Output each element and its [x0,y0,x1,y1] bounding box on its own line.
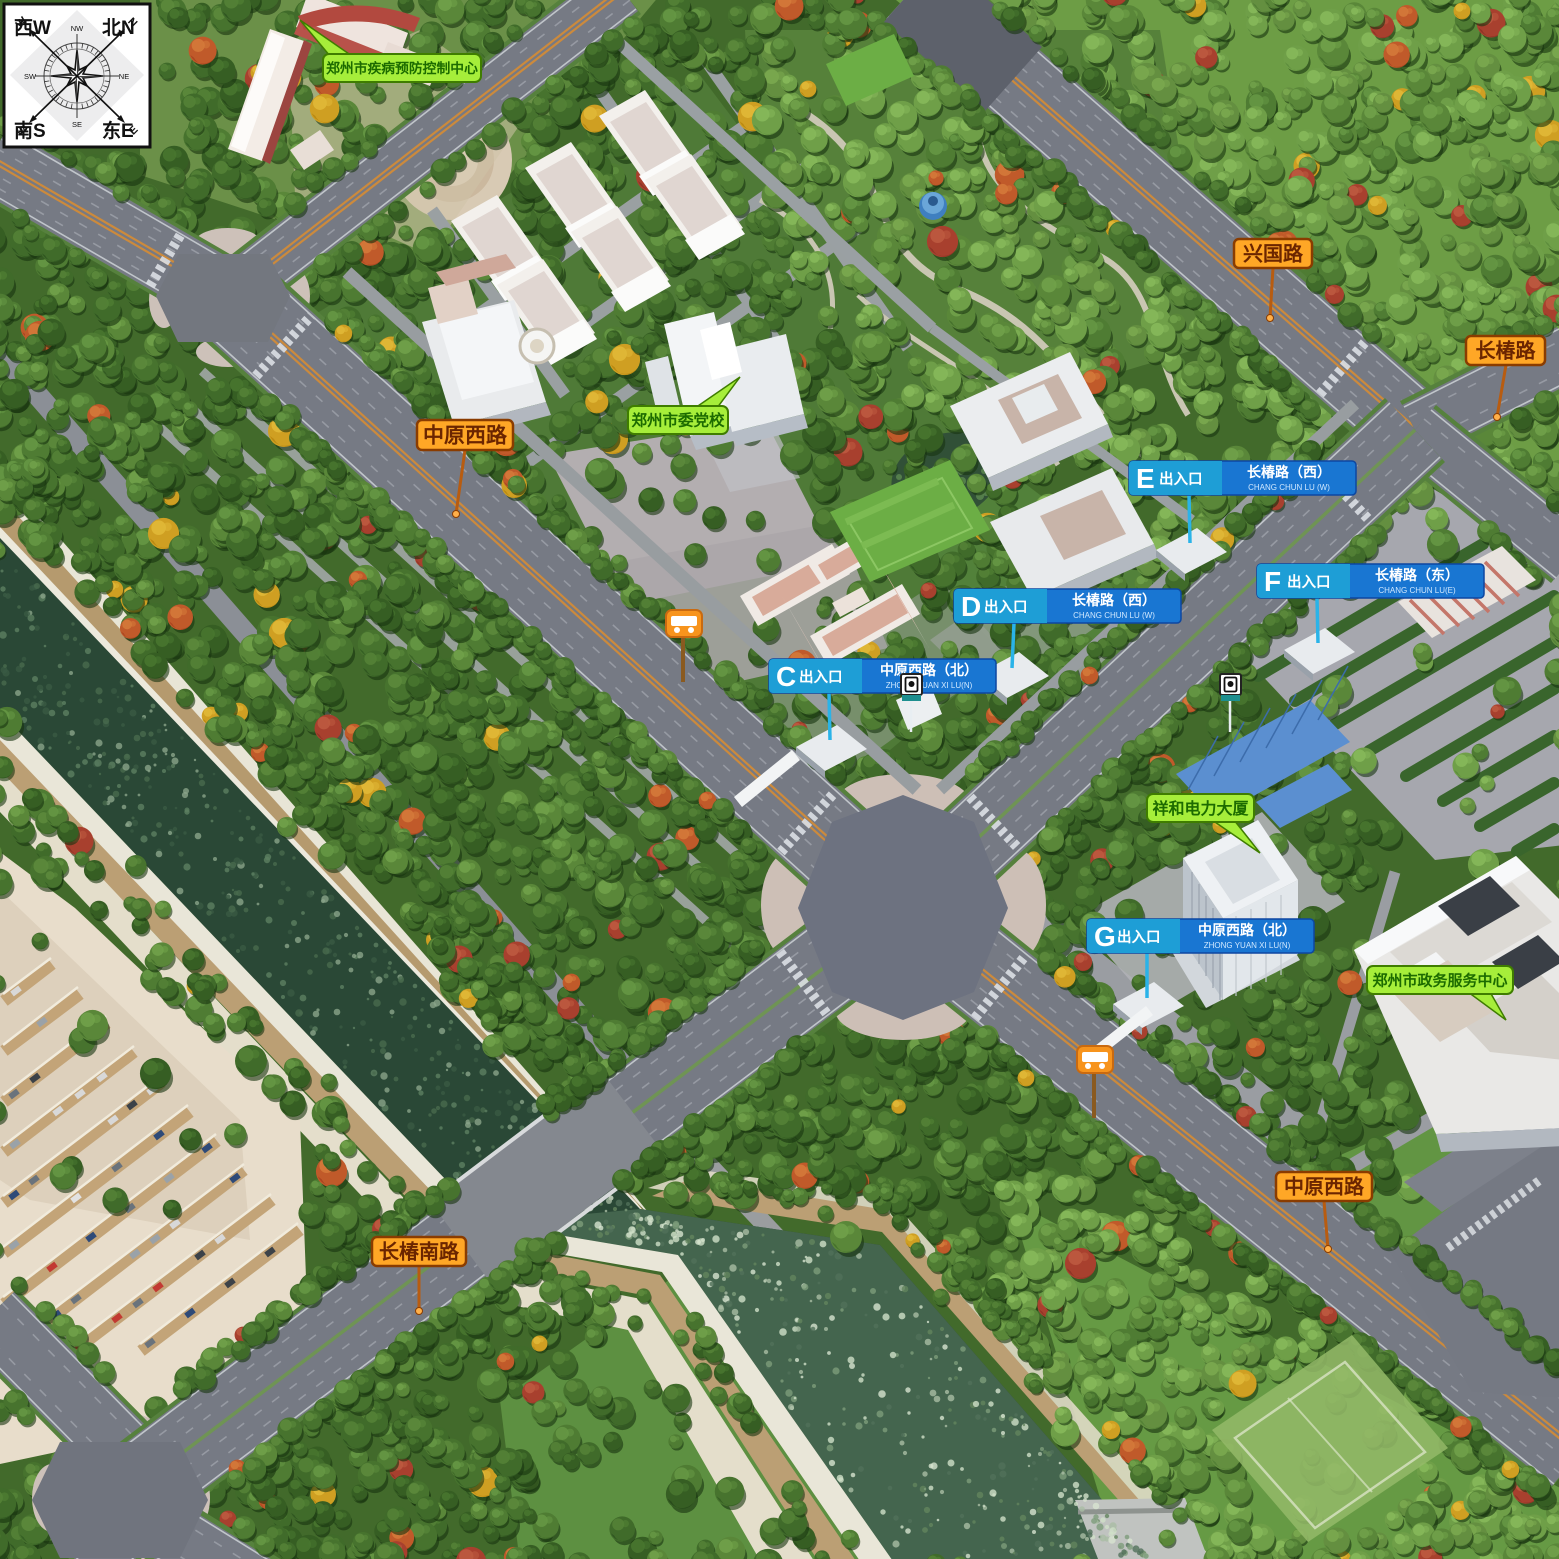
svg-text:郑州市委党校: 郑州市委党校 [631,411,725,430]
svg-text:F: F [1264,566,1281,597]
svg-text:长椿路（西）: 长椿路（西） [1247,464,1331,480]
svg-text:ZHONG YUAN XI LU(N): ZHONG YUAN XI LU(N) [1204,941,1291,950]
svg-text:南S: 南S [14,120,46,142]
svg-text:长椿路: 长椿路 [1476,339,1537,363]
svg-text:NW: NW [71,24,84,33]
svg-text:中原西路: 中原西路 [423,424,508,448]
svg-text:出入口: 出入口 [984,598,1028,616]
svg-text:出入口: 出入口 [799,668,843,686]
svg-text:NE: NE [119,72,129,81]
svg-text:长椿路（东）: 长椿路（东） [1375,567,1459,583]
svg-text:G: G [1094,921,1116,952]
svg-text:CHANG CHUN LU (W): CHANG CHUN LU (W) [1248,483,1330,492]
svg-text:祥和电力大厦: 祥和电力大厦 [1152,799,1249,818]
svg-text:兴国路: 兴国路 [1243,242,1304,266]
svg-text:郑州市疾病预防控制中心: 郑州市疾病预防控制中心 [326,60,478,76]
svg-text:出入口: 出入口 [1117,928,1161,946]
svg-text:北N: 北N [102,17,135,39]
svg-text:ZHONG YUAN XI LU(N): ZHONG YUAN XI LU(N) [886,681,973,690]
svg-text:中原西路（北）: 中原西路（北） [1198,922,1296,938]
svg-text:长椿南路: 长椿南路 [379,1240,460,1264]
svg-text:长椿路（西）: 长椿路（西） [1072,592,1156,608]
svg-text:东E: 东E [102,119,134,142]
svg-text:中原西路（北）: 中原西路（北） [880,662,978,678]
svg-text:出入口: 出入口 [1287,573,1331,591]
svg-text:CHANG CHUN LU (W): CHANG CHUN LU (W) [1073,611,1155,620]
svg-text:出入口: 出入口 [1159,470,1203,488]
svg-text:CHANG CHUN LU(E): CHANG CHUN LU(E) [1378,586,1456,595]
svg-text:SE: SE [72,120,82,129]
svg-text:SW: SW [24,72,37,81]
svg-text:西W: 西W [14,18,51,39]
svg-text:E: E [1136,463,1155,494]
svg-text:郑州市政务服务中心: 郑州市政务服务中心 [1372,971,1507,989]
svg-text:中原西路: 中原西路 [1284,1175,1365,1199]
svg-text:C: C [776,661,796,692]
svg-text:D: D [961,591,981,622]
